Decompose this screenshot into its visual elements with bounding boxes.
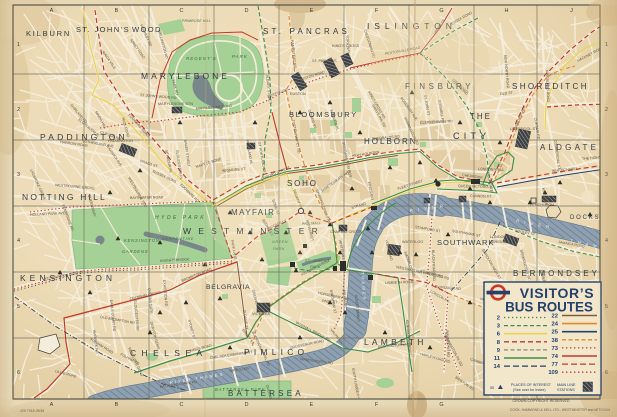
svg-text:HYDE PARK: HYDE PARK xyxy=(155,215,206,221)
svg-text:6: 6 xyxy=(17,370,20,376)
svg-text:38: 38 xyxy=(552,338,559,344)
svg-text:1: 1 xyxy=(17,42,20,48)
svg-text:ALDGATE: ALDGATE xyxy=(540,143,599,152)
svg-text:BLOOMSBURY: BLOOMSBURY xyxy=(289,110,358,119)
svg-text:LIVERPOOL ST: LIVERPOOL ST xyxy=(510,127,538,131)
svg-text:G: G xyxy=(439,8,443,14)
svg-text:SOHO: SOHO xyxy=(287,179,318,188)
svg-text:14: 14 xyxy=(494,364,501,370)
svg-text:VICTORIA: VICTORIA xyxy=(252,312,270,316)
svg-text:5: 5 xyxy=(17,304,20,310)
svg-text:77: 77 xyxy=(552,362,558,368)
svg-text:PADDINGTON: PADDINGTON xyxy=(108,139,133,143)
svg-text:SHOREDITCH: SHOREDITCH xyxy=(512,82,589,91)
svg-text:PARK: PARK xyxy=(232,54,248,59)
svg-text:BATTERSEA PARK: BATTERSEA PARK xyxy=(215,387,266,392)
svg-text:H: H xyxy=(505,8,509,14)
svg-text:E: E xyxy=(310,8,314,14)
svg-text:PIMLICO: PIMLICO xyxy=(244,347,308,357)
svg-text:2: 2 xyxy=(17,107,20,113)
svg-text:ST. JOHN’S: ST. JOHN’S xyxy=(76,25,130,34)
svg-text:22: 22 xyxy=(552,314,558,320)
svg-text:C: C xyxy=(180,8,184,14)
svg-text:FENCHURCH: FENCHURCH xyxy=(530,203,554,207)
svg-text:ST. JAMES’S: ST. JAMES’S xyxy=(305,259,330,263)
svg-text:KILBURN: KILBURN xyxy=(26,29,71,38)
svg-text:NOTTING HILL: NOTTING HILL xyxy=(22,192,107,202)
svg-text:WOOD: WOOD xyxy=(132,25,162,34)
svg-text:LONDON: LONDON xyxy=(490,235,507,239)
svg-text:4: 4 xyxy=(17,238,20,244)
svg-text:A: A xyxy=(50,8,54,14)
svg-text:3: 3 xyxy=(17,172,20,178)
svg-text:CITY: CITY xyxy=(453,131,490,141)
svg-text:GARDENS: GARDENS xyxy=(122,249,148,254)
svg-text:KENSINGTON: KENSINGTON xyxy=(20,273,116,283)
svg-text:2: 2 xyxy=(497,316,500,322)
svg-text:PARK: PARK xyxy=(310,265,321,269)
svg-text:CANNON ST: CANNON ST xyxy=(470,194,492,199)
svg-text:PRIMROSE HILL: PRIMROSE HILL xyxy=(182,19,211,23)
svg-text:ST. PANCRAS: ST. PANCRAS xyxy=(312,59,337,63)
svg-text:J: J xyxy=(570,8,573,14)
svg-text:BRIDGE: BRIDGE xyxy=(492,240,507,244)
svg-text:MARYLEBONE: MARYLEBONE xyxy=(141,71,230,81)
svg-text:BERMONDSEY: BERMONDSEY xyxy=(513,269,600,278)
svg-text:KENSINGTON: KENSINGTON xyxy=(124,238,160,243)
svg-text:B: B xyxy=(115,8,119,14)
svg-text:MAIN LINE: MAIN LINE xyxy=(557,383,576,387)
svg-text:109: 109 xyxy=(548,370,558,376)
svg-text:55: 55 xyxy=(490,386,494,390)
svg-text:SOUTHWARK: SOUTHWARK xyxy=(437,238,494,247)
svg-text:(See over for Index): (See over for Index) xyxy=(513,388,546,392)
svg-text:CROWN COPYRIGHT RESERVED: CROWN COPYRIGHT RESERVED xyxy=(513,399,570,403)
svg-text:ST. PANCRAS: ST. PANCRAS xyxy=(263,27,350,36)
svg-text:11: 11 xyxy=(494,356,501,362)
svg-text:THE: THE xyxy=(470,112,492,121)
svg-text:25: 25 xyxy=(552,330,559,336)
svg-text:24: 24 xyxy=(552,322,559,328)
svg-text:74: 74 xyxy=(552,354,559,360)
svg-text:MARYLEBONE STN: MARYLEBONE STN xyxy=(158,102,193,106)
svg-text:CHARING CROSS: CHARING CROSS xyxy=(330,230,363,234)
svg-text:PLACES OF INTEREST: PLACES OF INTEREST xyxy=(511,383,552,387)
svg-text:SERPENTINE: SERPENTINE xyxy=(162,237,194,241)
svg-text:DOCKS: DOCKS xyxy=(570,215,600,221)
svg-text:KING’S CROSS: KING’S CROSS xyxy=(332,44,360,48)
svg-text:73: 73 xyxy=(552,346,559,352)
svg-text:STATIONS: STATIONS xyxy=(557,388,575,392)
svg-text:REGENT’S: REGENT’S xyxy=(186,56,217,61)
svg-text:BUS ROUTES: BUS ROUTES xyxy=(505,300,593,315)
svg-text:EUSTON: EUSTON xyxy=(290,92,306,96)
svg-text:CHELSEA: CHELSEA xyxy=(130,348,207,358)
svg-text:BAYSWATER ROAD: BAYSWATER ROAD xyxy=(130,195,164,200)
svg-text:HOLBORN: HOLBORN xyxy=(364,137,418,146)
svg-text:WATERLOO: WATERLOO xyxy=(402,240,423,244)
svg-text:D: D xyxy=(245,8,249,14)
svg-text:BELGRAVIA: BELGRAVIA xyxy=(206,284,250,291)
svg-text:LAMBETH: LAMBETH xyxy=(364,337,427,347)
